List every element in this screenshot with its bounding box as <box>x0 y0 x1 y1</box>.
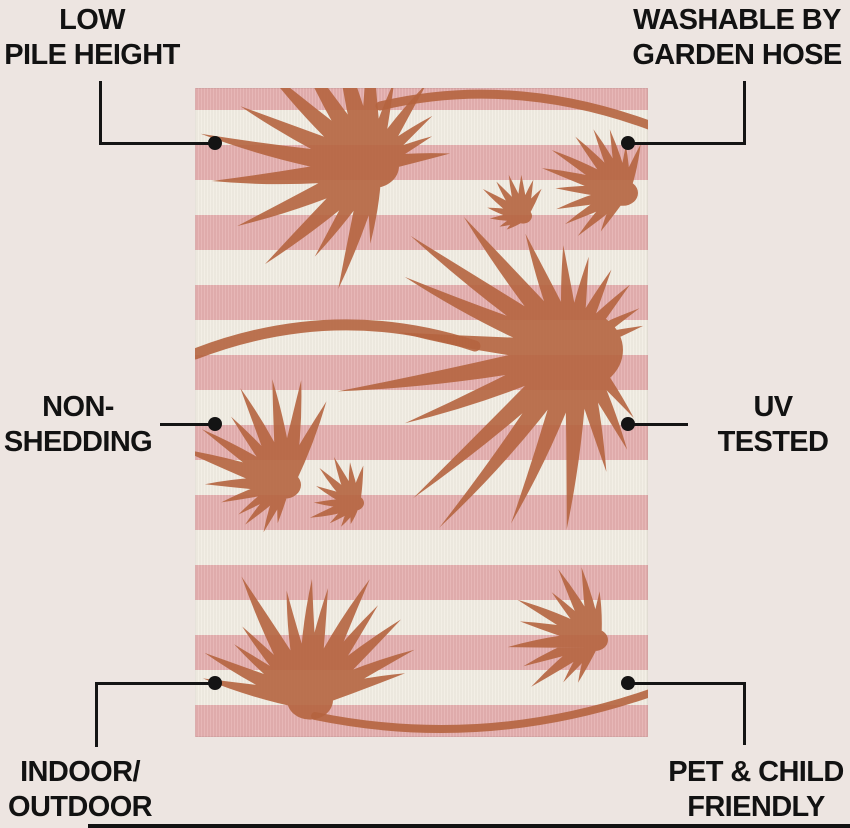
feature-label-line: PET & CHILD <box>645 755 850 790</box>
palm-leaf <box>201 88 451 289</box>
callout-line <box>743 682 746 745</box>
feature-label-indoor-outdoor: INDOOR/ OUTDOOR <box>0 755 160 825</box>
palm-leaf <box>310 457 364 527</box>
feature-label-washable-by-garden-hose: WASHABLE BY GARDEN HOSE <box>625 3 849 73</box>
palm-stem <box>315 692 648 729</box>
callout-line <box>628 142 745 145</box>
product-feature-infographic: LOW PILE HEIGHT WASHABLE BY GARDEN HOSE … <box>0 0 850 828</box>
palm-leaf <box>483 175 542 230</box>
callout-line <box>628 682 745 685</box>
palm-leaf <box>338 217 644 530</box>
feature-label-line: INDOOR/ <box>0 755 160 790</box>
feature-label-line: LOW <box>0 3 184 38</box>
callout-line <box>95 682 216 685</box>
callout-line <box>99 142 216 145</box>
callout-dot <box>621 136 635 150</box>
callout-line <box>628 423 688 426</box>
feature-label-line: SHEDDING <box>0 425 156 460</box>
palm-leaf <box>195 379 327 532</box>
bottom-edge-bar <box>88 824 850 828</box>
callout-dot <box>621 417 635 431</box>
feature-label-line: TESTED <box>695 425 850 460</box>
palm-leaf-pattern <box>195 88 648 737</box>
feature-label-line: GARDEN HOSE <box>625 38 849 73</box>
feature-label-line: OUTDOOR <box>0 790 160 825</box>
callout-dot <box>208 417 222 431</box>
rug-product-image <box>195 88 648 737</box>
feature-label-line: NON- <box>0 390 156 425</box>
feature-label-low-pile-height: LOW PILE HEIGHT <box>0 3 184 73</box>
palm-leaf <box>203 577 415 720</box>
callout-line <box>99 81 102 145</box>
feature-label-line: PILE HEIGHT <box>0 38 184 73</box>
feature-label-line: FRIENDLY <box>645 790 850 825</box>
feature-label-pet-child-friendly: PET & CHILD FRIENDLY <box>645 755 850 825</box>
callout-dot <box>208 676 222 690</box>
palm-leaf <box>508 567 608 686</box>
callout-dot <box>208 136 222 150</box>
callout-line <box>95 682 98 747</box>
feature-label-non-shedding: NON- SHEDDING <box>0 390 156 460</box>
feature-label-line: UV <box>695 390 850 425</box>
feature-label-line: WASHABLE BY <box>625 3 849 38</box>
callout-line <box>743 81 746 145</box>
feature-label-uv-tested: UV TESTED <box>695 390 850 460</box>
callout-dot <box>621 676 635 690</box>
